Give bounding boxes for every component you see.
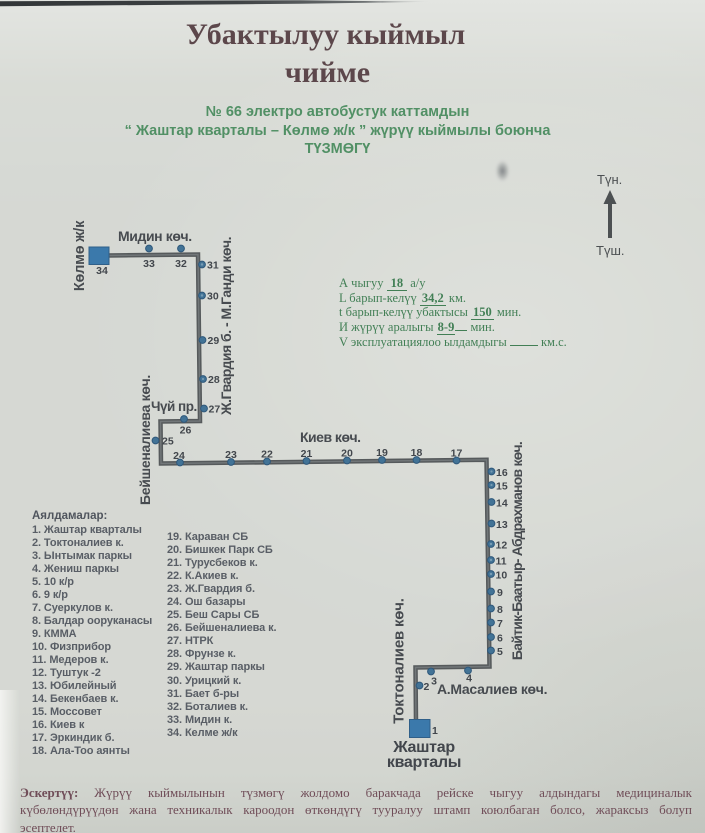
svg-text:25: 25 xyxy=(162,436,174,448)
svg-text:33: 33 xyxy=(143,258,155,270)
svg-text:2: 2 xyxy=(424,681,430,693)
svg-text:16: 16 xyxy=(496,467,508,479)
svg-text:5: 5 xyxy=(497,646,503,658)
svg-text:6: 6 xyxy=(497,633,503,645)
svg-text:21: 21 xyxy=(301,448,313,460)
svg-text:15: 15 xyxy=(496,481,508,493)
svg-text:14: 14 xyxy=(496,498,508,510)
svg-text:12: 12 xyxy=(496,540,508,552)
svg-text:11: 11 xyxy=(496,556,507,568)
svg-text:24: 24 xyxy=(173,450,185,462)
svg-text:26: 26 xyxy=(180,425,192,437)
svg-text:19: 19 xyxy=(376,447,388,459)
svg-text:32: 32 xyxy=(175,258,187,270)
svg-text:34: 34 xyxy=(96,265,108,277)
svg-text:7: 7 xyxy=(497,618,503,630)
svg-text:20: 20 xyxy=(341,448,353,460)
svg-text:17: 17 xyxy=(451,448,463,460)
svg-text:1: 1 xyxy=(432,725,438,737)
svg-text:23: 23 xyxy=(225,449,237,461)
svg-text:18: 18 xyxy=(411,447,423,459)
svg-text:10: 10 xyxy=(496,570,508,582)
svg-text:9: 9 xyxy=(497,587,503,599)
svg-text:13: 13 xyxy=(496,519,508,531)
svg-text:22: 22 xyxy=(261,449,273,461)
svg-text:8: 8 xyxy=(497,604,503,616)
